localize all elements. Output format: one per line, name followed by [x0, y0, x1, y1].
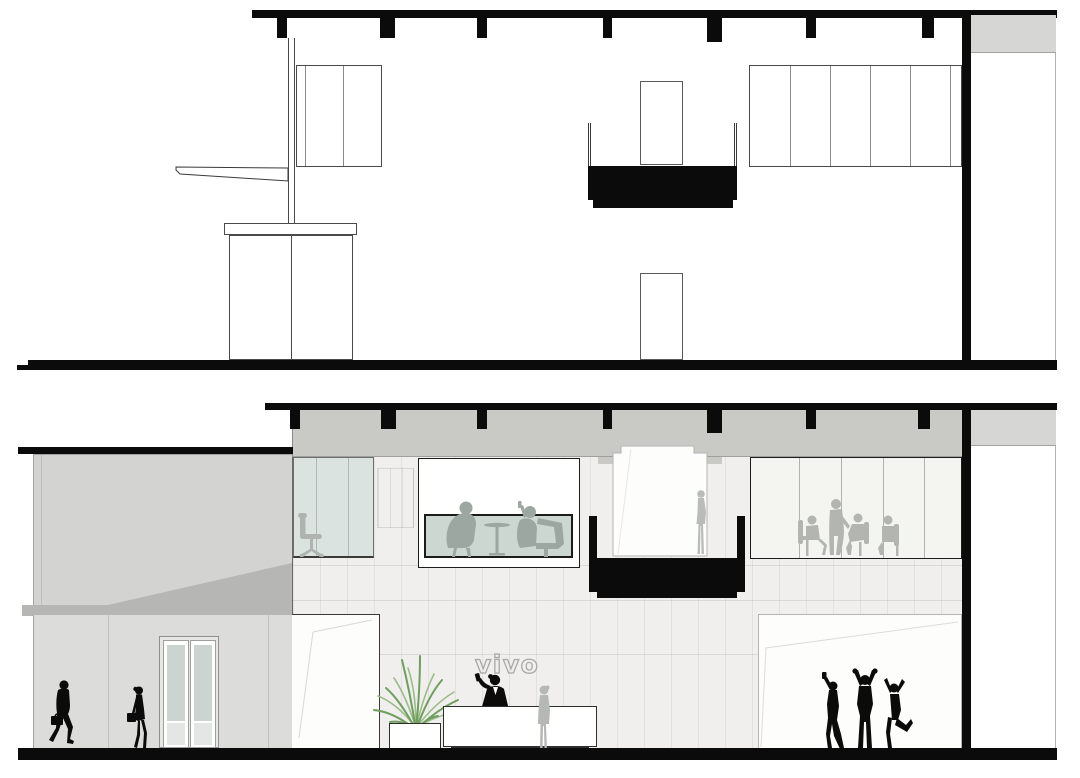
soffit-post-right: [737, 516, 745, 558]
receptionist-silhouette: [468, 672, 516, 710]
alcove-shoulder: [707, 457, 722, 464]
glazing-mullion: [924, 458, 925, 558]
roof-joist: [707, 18, 722, 42]
roof-joist: [277, 18, 287, 38]
facade-seam: [268, 615, 269, 748]
column: [288, 38, 295, 225]
stage-alcove: [585, 438, 735, 560]
glazing-mullion: [348, 458, 349, 556]
facade-seam: [108, 615, 109, 748]
black-soffit-lip: [593, 200, 733, 208]
upper-wall-cabinet: [296, 65, 382, 167]
wall-cabinet-run: [749, 65, 962, 167]
cabinet-divider: [343, 66, 344, 166]
roof-joist: [918, 410, 930, 429]
door-glass: [167, 645, 185, 721]
entrance-door-leaf: [163, 640, 189, 748]
office-chair-silhouette: [295, 513, 329, 557]
tile-seam: [292, 600, 962, 601]
door-glass-lower: [194, 723, 212, 745]
cabinet-divider: [910, 66, 911, 166]
pedestrian-woman-silhouette: [124, 685, 154, 752]
floor-line: [18, 748, 1057, 760]
base-cabinet-body: [229, 235, 353, 360]
door-glass-lower: [167, 723, 185, 745]
reception-desk: [443, 706, 597, 747]
service-bay-block: [971, 410, 1056, 446]
fine-tile-patch: [377, 468, 414, 528]
angled-wall-panel-lines: [291, 614, 380, 751]
right-party-wall: [962, 403, 971, 748]
roof-joist: [603, 18, 612, 38]
cabinet-divider: [790, 66, 791, 166]
celebrating-group-silhouette: [818, 668, 914, 752]
cabinet-divider: [830, 66, 831, 166]
right-party-wall: [962, 12, 971, 360]
conference-group-silhouette: [796, 496, 916, 558]
service-bay-edge: [1055, 446, 1056, 748]
roof-joist: [806, 18, 816, 38]
roof-joist: [922, 18, 934, 38]
facade-seam: [41, 455, 42, 615]
soffit-hanger-right: [734, 123, 737, 166]
service-bay-edge: [1055, 53, 1056, 360]
black-soffit-lip: [597, 592, 737, 598]
cabinet-divider: [291, 236, 292, 359]
cabinet-divider: [305, 66, 306, 166]
roof-joist: [477, 18, 487, 38]
roof-joist: [707, 410, 722, 433]
soffit-hanger-left: [588, 123, 591, 166]
roof-slab: [252, 10, 1057, 18]
roof-joist: [806, 410, 816, 429]
roof-joist: [477, 410, 487, 429]
base-cabinet-top: [224, 223, 357, 235]
alcove-shoulder: [598, 457, 613, 464]
street-building-cap: [18, 447, 293, 454]
roof-joist: [290, 410, 300, 429]
soffit-post-left: [589, 516, 597, 558]
doorway-opening-upper: [640, 81, 683, 165]
cabinet-divider: [870, 66, 871, 166]
service-bay-block: [971, 15, 1056, 53]
cantilever-counter: [170, 160, 290, 188]
roof-slab: [265, 403, 1057, 410]
customer-silhouette: [532, 684, 556, 752]
black-soffit: [588, 166, 737, 200]
pedestrian-man-silhouette: [44, 679, 80, 753]
entrance-door-leaf: [190, 640, 216, 748]
door-glass: [194, 645, 212, 721]
black-soffit: [589, 558, 745, 592]
ground-step: [17, 365, 28, 370]
lounge-pair-silhouette: [424, 496, 574, 558]
cabinet-divider: [950, 66, 951, 166]
ground-line: [28, 360, 1057, 370]
roof-joist: [381, 410, 396, 429]
doorway-opening-lower: [640, 273, 683, 360]
architectural-section-sheet: vivo: [0, 0, 1080, 778]
roof-joist: [603, 410, 612, 429]
roof-joist: [380, 18, 395, 38]
